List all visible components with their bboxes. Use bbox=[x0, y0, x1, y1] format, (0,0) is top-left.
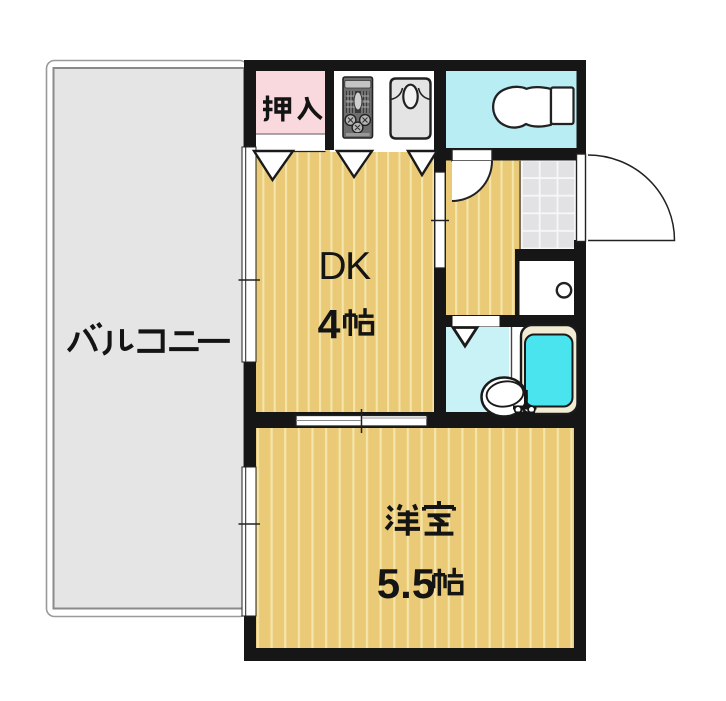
svg-text:DK: DK bbox=[318, 245, 371, 288]
svg-text:4: 4 bbox=[318, 301, 341, 347]
svg-text:5.5: 5.5 bbox=[377, 560, 435, 607]
